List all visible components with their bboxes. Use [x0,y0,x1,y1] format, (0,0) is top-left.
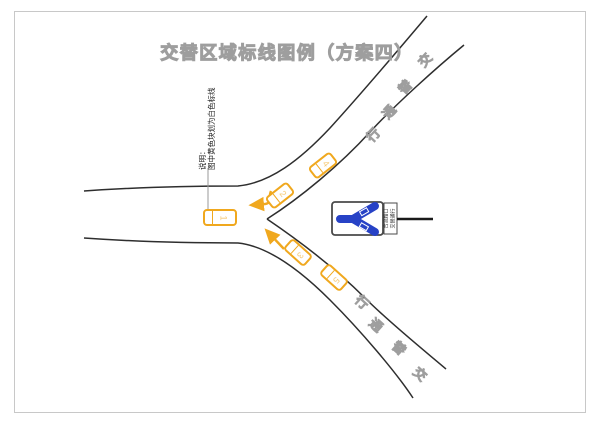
diagram-title: 交替区域标线图例（方案四） [137,39,437,65]
note-text: 说明： 图中黄色块划为白色标线 [198,74,216,170]
note-prefix: 说明： [198,74,207,170]
note-body: 图中黄色块划为白色标线 [207,74,216,170]
road-edge-lower-outer [84,238,413,398]
car-number: 3 [296,250,307,260]
merge-sign [332,202,433,235]
car-number: 1 [219,215,229,220]
car-number: 2 [278,188,289,198]
sign-plate-text: 合流路口 交替通行 [384,204,397,234]
car-1: 1 [203,209,237,226]
merge-arrow-from-car3 [267,231,284,249]
sign-plate-line2: 交替通行 [390,204,397,234]
car-windshield-divider [205,211,213,224]
car-number: 5 [332,275,343,285]
diagram-canvas: 交替区域标线图例（方案四） 说明： 图中黄色块划为白色标线 行 通 替 交 行 … [0,0,600,424]
car-number: 4 [321,158,332,168]
